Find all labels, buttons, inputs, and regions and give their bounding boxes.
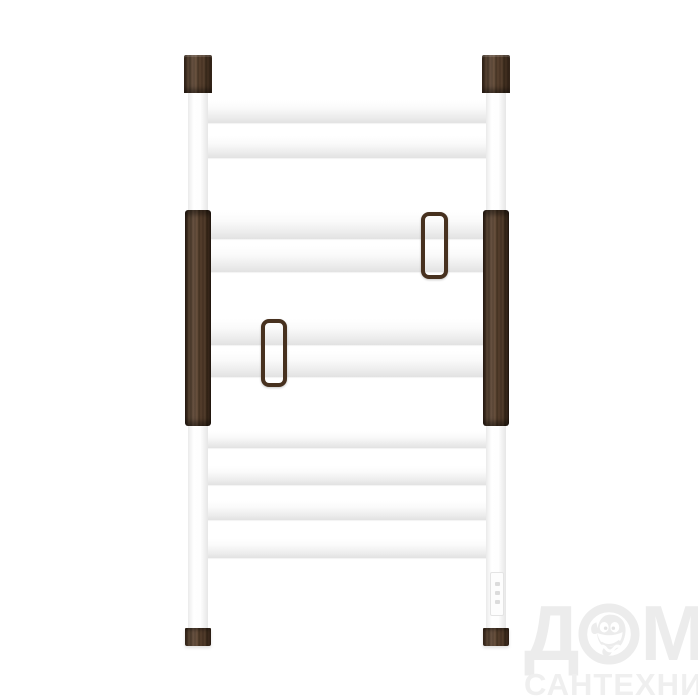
watermark-letter-d: Д — [524, 598, 577, 670]
rail-bar — [200, 100, 495, 123]
towel-rail — [0, 0, 698, 698]
control-indicator-dot — [495, 591, 500, 595]
rail-foot — [185, 628, 211, 646]
rail-wood-sleeve — [483, 210, 509, 426]
rail-foot — [483, 628, 509, 646]
towel-hook — [261, 319, 287, 387]
rail-bar — [200, 466, 495, 485]
rail-bar — [200, 351, 495, 377]
rail-bar — [200, 431, 495, 448]
watermark-word: Д М — [524, 598, 698, 670]
towel-hook — [421, 212, 448, 279]
watermark-subtitle: САНТЕХНИКИ — [524, 667, 698, 698]
temperature-control-panel — [490, 572, 504, 616]
rail-top-cap — [184, 55, 212, 93]
rail-top-cap — [482, 55, 510, 93]
watermark-logo: Д М САНТЕХНИКИ — [524, 598, 698, 698]
rail-wood-sleeve — [185, 210, 211, 426]
rail-bar — [200, 246, 495, 272]
rail-bar — [200, 319, 495, 345]
control-indicator-dot — [495, 582, 500, 586]
rail-bar — [200, 212, 495, 239]
watermark-letter-m: М — [641, 598, 698, 670]
rail-bar — [200, 136, 495, 158]
control-indicator-dot — [495, 600, 500, 604]
fish-mascot-icon — [578, 603, 640, 665]
rail-bar — [200, 501, 495, 520]
rail-bar — [200, 539, 495, 558]
product-photo: Д М САНТЕХНИКИ — [0, 0, 698, 698]
